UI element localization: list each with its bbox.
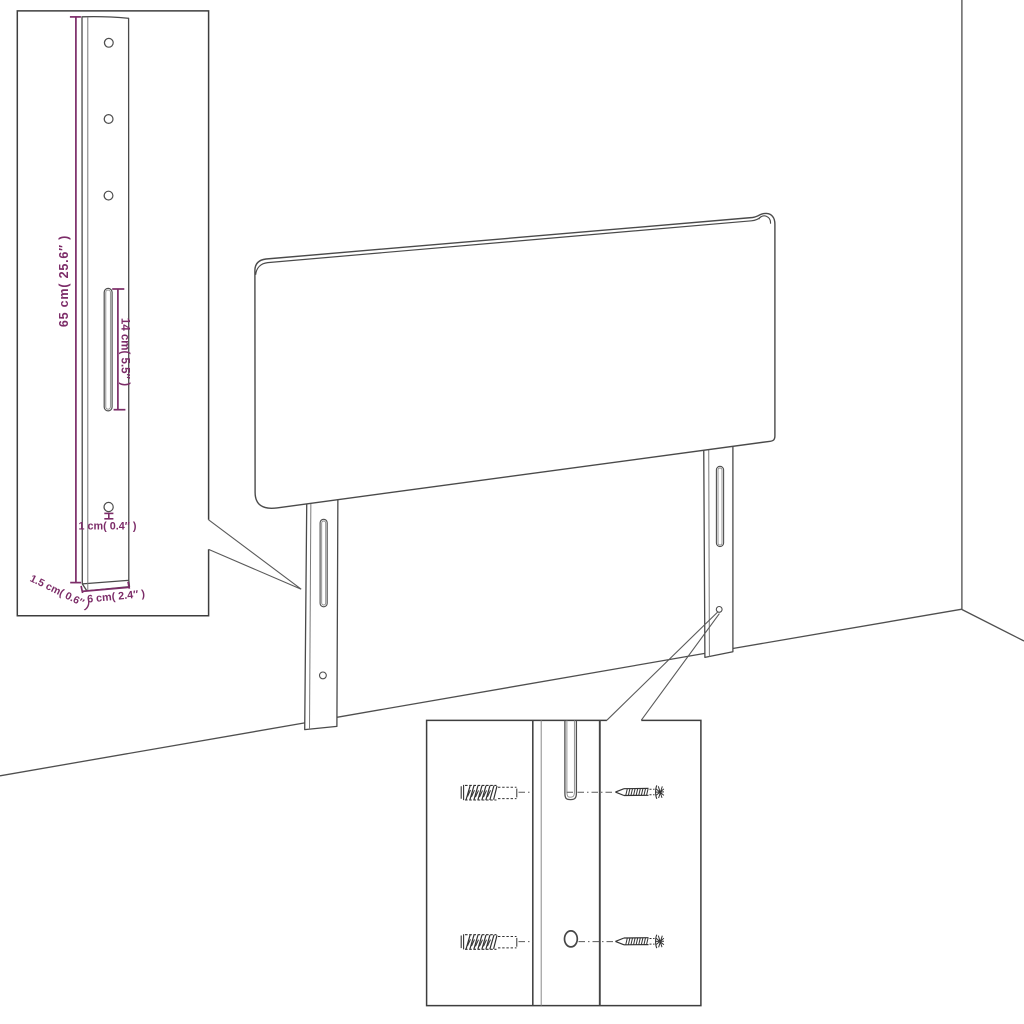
svg-text:1 cm( 0.4″ ): 1 cm( 0.4″ ) xyxy=(79,520,137,532)
svg-text:14 cm( 5.5″ ): 14 cm( 5.5″ ) xyxy=(118,318,130,386)
svg-text:65 cm( 25.6″ ): 65 cm( 25.6″ ) xyxy=(57,235,71,327)
